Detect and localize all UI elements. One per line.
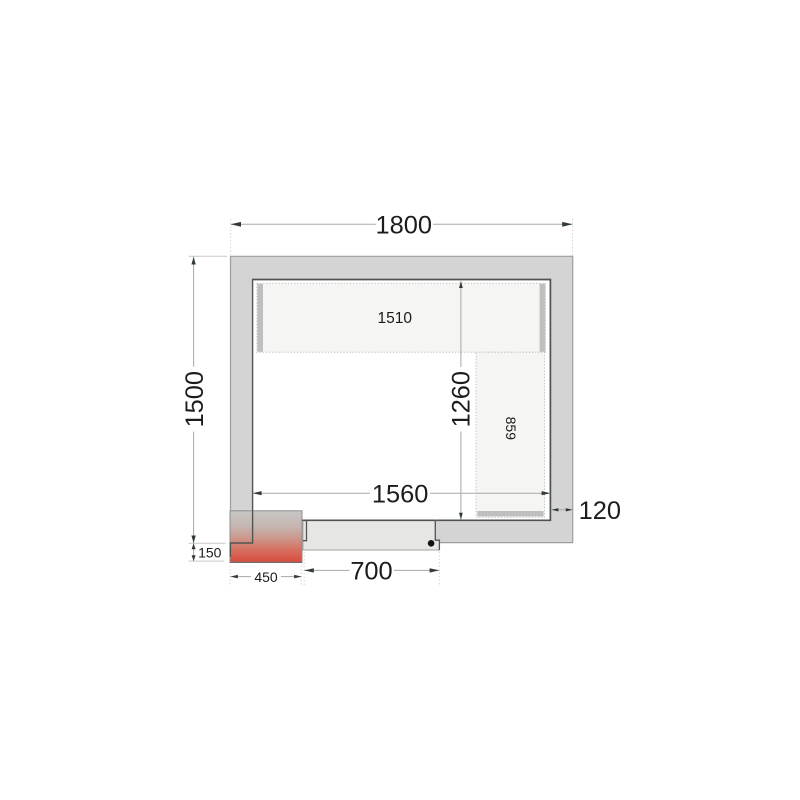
svg-text:150: 150	[198, 545, 222, 561]
svg-text:1510: 1510	[378, 310, 413, 327]
svg-text:859: 859	[503, 417, 519, 441]
svg-text:120: 120	[579, 497, 621, 525]
svg-text:450: 450	[254, 569, 278, 585]
svg-text:1500: 1500	[181, 371, 209, 427]
svg-text:1800: 1800	[376, 212, 432, 240]
svg-text:1260: 1260	[448, 371, 476, 427]
svg-text:1560: 1560	[372, 480, 428, 508]
svg-text:700: 700	[350, 558, 392, 586]
